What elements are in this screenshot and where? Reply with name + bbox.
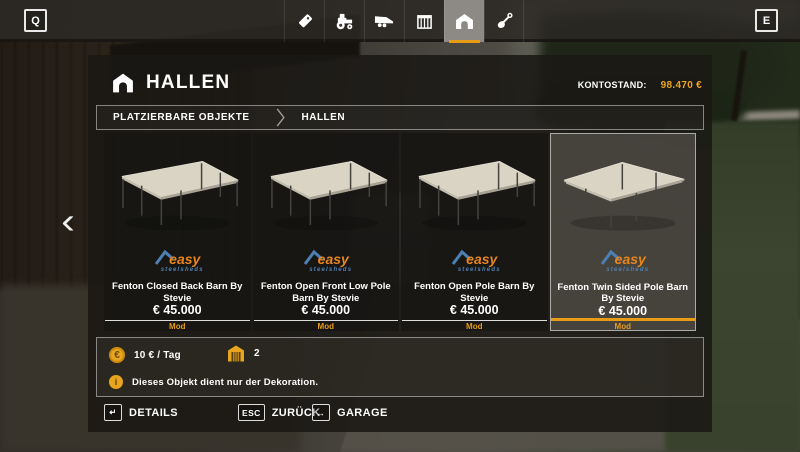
item-price: € 45.000: [401, 303, 548, 318]
brand-logo: easy steelsheds: [401, 246, 548, 281]
tab-placeables[interactable]: [444, 0, 484, 42]
item-grid: easy steelsheds Fenton Closed Back Barn …: [104, 133, 696, 331]
account-balance: KONTOSTAND: 98.470 €: [578, 80, 702, 91]
daily-cost-row: € 10 € / Tag: [109, 347, 181, 363]
brand-subname: steelsheds: [263, 267, 400, 273]
details-label: DETAILS: [129, 407, 178, 419]
item-card-fenton-open-front-low[interactable]: easy steelsheds Fenton Open Front Low Po…: [253, 133, 400, 331]
card-divider: [402, 320, 547, 321]
item-price: € 45.000: [104, 303, 251, 318]
esc-key-icon: ESC: [238, 404, 265, 421]
action-bar: ↵ DETAILS ESC ZURÜCK ↔ GARAGE: [88, 404, 712, 426]
balance-label: KONTOSTAND:: [578, 80, 647, 90]
shop-category-tabs: [284, 0, 524, 42]
breadcrumb: PLATZIERBARE OBJEKTE HALLEN: [96, 105, 704, 130]
item-title: Fenton Closed Back Barn By Stevie: [104, 280, 251, 303]
card-divider: [105, 320, 250, 321]
item-price: € 45.000: [253, 303, 400, 318]
barn-icon: [112, 73, 134, 93]
brand-name: easy: [615, 252, 646, 266]
tractor-icon: [334, 12, 355, 31]
tab-objects[interactable]: [404, 0, 444, 42]
barn-icon: [455, 13, 474, 30]
item-price: € 45.000: [550, 304, 697, 319]
card-divider-selected: [551, 318, 696, 321]
brand-name: easy: [318, 252, 349, 266]
balance-value: 98.470 €: [661, 80, 702, 91]
top-bar: Q: [0, 0, 800, 42]
daily-cost-value: 10 € / Tag: [134, 350, 181, 361]
brand-subname: steelsheds: [411, 267, 548, 273]
breadcrumb-item-placeables[interactable]: PLATZIERBARE OBJEKTE: [97, 112, 250, 123]
garage-icon: [227, 345, 245, 362]
mod-badge: Mod: [253, 322, 400, 331]
decoration-note: Dieses Objekt dient nur der Dekoration.: [132, 377, 318, 388]
brand-subname: steelsheds: [114, 267, 251, 273]
brand-subname: steelsheds: [560, 267, 697, 273]
card-divider: [254, 320, 399, 321]
breadcrumb-item-hallen[interactable]: HALLEN: [302, 112, 346, 123]
key-hint-e: E: [755, 9, 778, 32]
brand-logo: easy steelsheds: [550, 246, 697, 281]
item-card-fenton-twin-sided[interactable]: easy steelsheds Fenton Twin Sided Pole B…: [550, 133, 697, 331]
tab-pricetag[interactable]: [284, 0, 324, 42]
game-screen: Q: [0, 0, 800, 452]
key-hint-e-label: E: [763, 15, 770, 27]
info-icon: i: [109, 375, 123, 389]
owned-count-row: 2: [227, 345, 260, 362]
enter-key-icon: ↵: [104, 404, 122, 421]
brand-logo: easy steelsheds: [104, 246, 251, 281]
item-thumbnail: [253, 137, 400, 246]
garage-label: GARAGE: [337, 407, 388, 419]
shop-panel: HALLEN KONTOSTAND: 98.470 € PLATZIERBARE…: [88, 55, 712, 432]
key-hint-q-label: Q: [31, 15, 40, 27]
shovel-icon: [495, 12, 514, 31]
garage-button[interactable]: ↔ GARAGE: [312, 404, 388, 421]
decoration-note-row: i Dieses Objekt dient nur der Dekoration…: [109, 375, 318, 389]
page-title: HALLEN: [146, 72, 230, 94]
tab-key-icon: ↔: [312, 404, 330, 421]
item-card-fenton-open-pole[interactable]: easy steelsheds Fenton Open Pole Barn By…: [401, 133, 548, 331]
prev-page-button[interactable]: ‹: [53, 203, 83, 243]
tab-vehicles[interactable]: [324, 0, 364, 42]
coin-icon: €: [109, 347, 125, 363]
item-thumbnail: [401, 137, 548, 246]
mod-badge: Mod: [550, 322, 697, 331]
tab-tools[interactable]: [364, 0, 404, 42]
details-button[interactable]: ↵ DETAILS: [104, 404, 178, 421]
brand-name: easy: [169, 252, 200, 266]
tab-landscaping[interactable]: [484, 0, 524, 42]
trailer-icon: [374, 14, 395, 28]
brand-logo: easy steelsheds: [253, 246, 400, 281]
item-info-box: € 10 € / Tag 2 i Dieses Objekt dient nur…: [96, 337, 704, 397]
price-tag-icon: [295, 12, 314, 31]
chevron-right-icon: [276, 108, 286, 127]
item-title: Fenton Open Pole Barn By Stevie: [401, 280, 548, 303]
mod-badge: Mod: [401, 322, 548, 331]
item-thumbnail: [104, 137, 251, 246]
mod-badge: Mod: [104, 322, 251, 331]
item-title: Fenton Twin Sided Pole Barn By Stevie: [550, 281, 697, 304]
back-button[interactable]: ESC ZURÜCK: [238, 404, 321, 421]
brand-name: easy: [466, 252, 497, 266]
item-title: Fenton Open Front Low Pole Barn By Stevi…: [253, 280, 400, 303]
item-thumbnail: [550, 137, 697, 246]
key-hint-q: Q: [24, 9, 47, 32]
item-card-fenton-closed-back[interactable]: easy steelsheds Fenton Closed Back Barn …: [104, 133, 251, 331]
owned-count-value: 2: [254, 348, 260, 359]
panel-header: HALLEN KONTOSTAND: 98.470 €: [112, 69, 702, 101]
pallet-box-icon: [416, 13, 433, 30]
